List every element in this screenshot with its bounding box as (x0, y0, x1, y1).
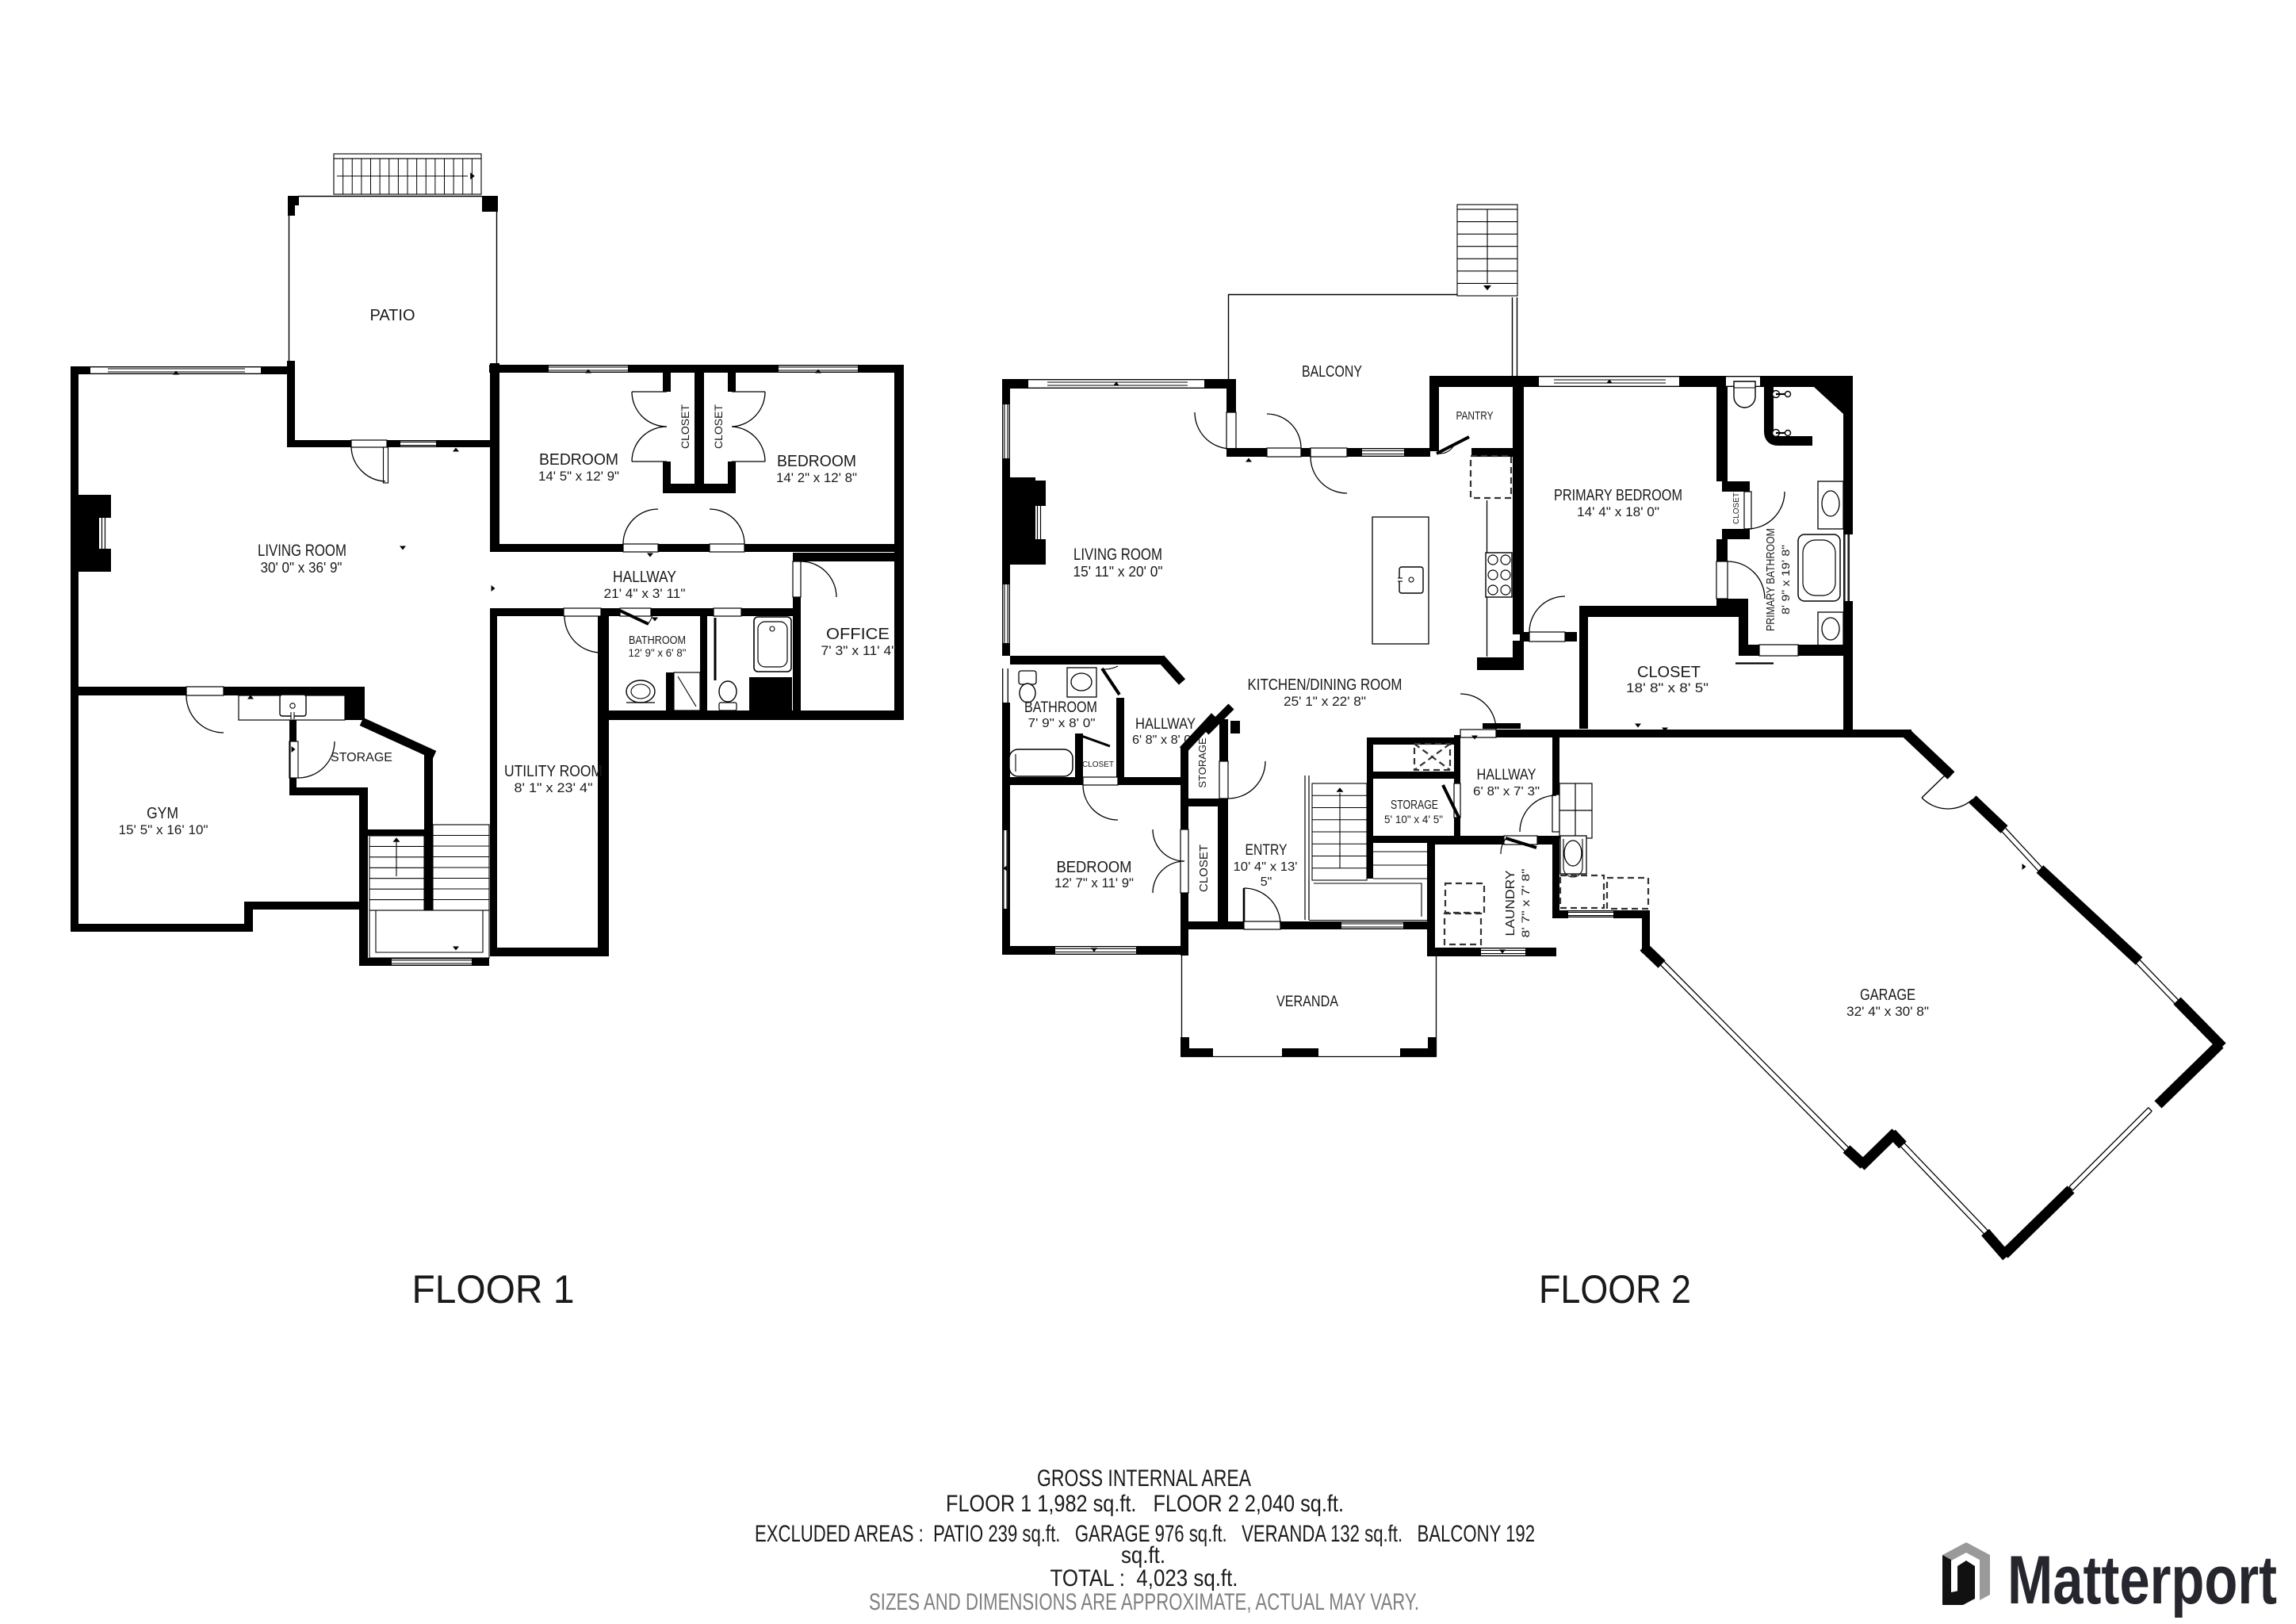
svg-text:7' 9" x 8' 0": 7' 9" x 8' 0" (1028, 717, 1096, 730)
svg-text:FLOOR 2: FLOOR 2 (1539, 1267, 1691, 1312)
svg-text:LIVING ROOM: LIVING ROOM (258, 542, 346, 560)
svg-text:5": 5" (1261, 875, 1272, 889)
svg-text:SIZES AND DIMENSIONS ARE APPRO: SIZES AND DIMENSIONS ARE APPROXIMATE, AC… (869, 1589, 1419, 1615)
svg-text:14' 2" x 12' 8": 14' 2" x 12' 8" (776, 470, 857, 485)
svg-text:12' 7" x 11' 9": 12' 7" x 11' 9" (1054, 875, 1134, 891)
svg-text:HALLWAY: HALLWAY (1135, 716, 1196, 733)
svg-text:15' 11" x 20' 0": 15' 11" x 20' 0" (1073, 564, 1163, 580)
svg-text:BATHROOM: BATHROOM (1024, 699, 1097, 716)
svg-text:STORAGE: STORAGE (331, 751, 392, 764)
svg-text:HALLWAY: HALLWAY (1477, 767, 1536, 783)
svg-text:12' 9" x 6' 8": 12' 9" x 6' 8" (629, 646, 687, 659)
svg-text:CLOSET: CLOSET (1197, 845, 1211, 892)
svg-text:FLOOR 1 1,982 sq.ft. FLOOR 2: FLOOR 1 1,982 sq.ft. FLOOR 2 2,040 sq.ft… (946, 1491, 1344, 1517)
svg-text:KITCHEN/DINING ROOM: KITCHEN/DINING ROOM (1248, 676, 1402, 694)
svg-text:5' 10" x 4' 5": 5' 10" x 4' 5" (1384, 813, 1443, 825)
svg-text:6' 8" x 7' 3": 6' 8" x 7' 3" (1473, 785, 1540, 799)
svg-text:15' 5" x 16' 10": 15' 5" x 16' 10" (119, 822, 209, 837)
svg-text:GROSS INTERNAL AREA: GROSS INTERNAL AREA (1037, 1465, 1251, 1492)
svg-text:BATHROOM: BATHROOM (629, 634, 686, 647)
svg-text:32' 4" x 30' 8": 32' 4" x 30' 8" (1846, 1004, 1929, 1019)
svg-text:GYM: GYM (147, 805, 178, 822)
svg-text:LAUNDRY: LAUNDRY (1504, 870, 1517, 936)
svg-text:21' 4" x 3' 11": 21' 4" x 3' 11" (604, 586, 686, 601)
svg-text:8' 7" x 7' 8": 8' 7" x 7' 8" (1519, 868, 1532, 937)
svg-text:BEDROOM: BEDROOM (777, 453, 856, 470)
svg-text:10' 4" x 13': 10' 4" x 13' (1234, 860, 1298, 874)
svg-text:BEDROOM: BEDROOM (1057, 859, 1132, 876)
svg-text:OFFICE: OFFICE (826, 626, 890, 643)
svg-text:8' 1" x 23' 4": 8' 1" x 23' 4" (515, 780, 593, 795)
svg-text:25' 1" x 22' 8": 25' 1" x 22' 8" (1284, 694, 1366, 709)
svg-text:STORAGE: STORAGE (1391, 799, 1438, 812)
svg-text:7' 3" x 11' 4": 7' 3" x 11' 4" (821, 643, 897, 658)
svg-text:CLOSET: CLOSET (712, 404, 725, 449)
svg-text:TOTAL : 4,023 sq.ft.: TOTAL : 4,023 sq.ft. (1050, 1565, 1238, 1591)
svg-text:ENTRY: ENTRY (1246, 842, 1288, 859)
svg-text:CLOSET: CLOSET (1082, 760, 1114, 769)
svg-text:STORAGE: STORAGE (1196, 737, 1208, 788)
svg-text:HALLWAY: HALLWAY (613, 569, 676, 586)
svg-text:CLOSET: CLOSET (679, 404, 691, 449)
svg-text:30' 0" x 36' 9": 30' 0" x 36' 9" (261, 560, 342, 576)
svg-text:8' 9" x 19' 8": 8' 9" x 19' 8" (1779, 545, 1792, 615)
svg-text:Matterport: Matterport (2007, 1542, 2277, 1618)
svg-text:PANTRY: PANTRY (1456, 409, 1494, 423)
svg-text:LIVING ROOM: LIVING ROOM (1073, 546, 1162, 564)
svg-text:CLOSET: CLOSET (1732, 492, 1741, 524)
svg-text:FLOOR 1: FLOOR 1 (412, 1267, 575, 1312)
svg-text:PATIO: PATIO (369, 307, 415, 324)
svg-text:UTILITY ROOM: UTILITY ROOM (504, 763, 603, 780)
svg-text:18' 8" x 8' 5": 18' 8" x 8' 5" (1626, 680, 1709, 695)
svg-text:PRIMARY BATHROOM: PRIMARY BATHROOM (1764, 528, 1777, 631)
svg-text:CLOSET: CLOSET (1637, 664, 1701, 681)
svg-text:GARAGE: GARAGE (1860, 986, 1915, 1004)
svg-text:14' 5" x 12' 9": 14' 5" x 12' 9" (538, 469, 619, 484)
svg-text:VERANDA: VERANDA (1276, 994, 1338, 1010)
svg-text:BEDROOM: BEDROOM (539, 451, 618, 469)
svg-text:14' 4" x 18' 0": 14' 4" x 18' 0" (1577, 504, 1659, 519)
svg-text:PRIMARY BEDROOM: PRIMARY BEDROOM (1554, 487, 1682, 504)
svg-text:BALCONY: BALCONY (1302, 363, 1362, 381)
